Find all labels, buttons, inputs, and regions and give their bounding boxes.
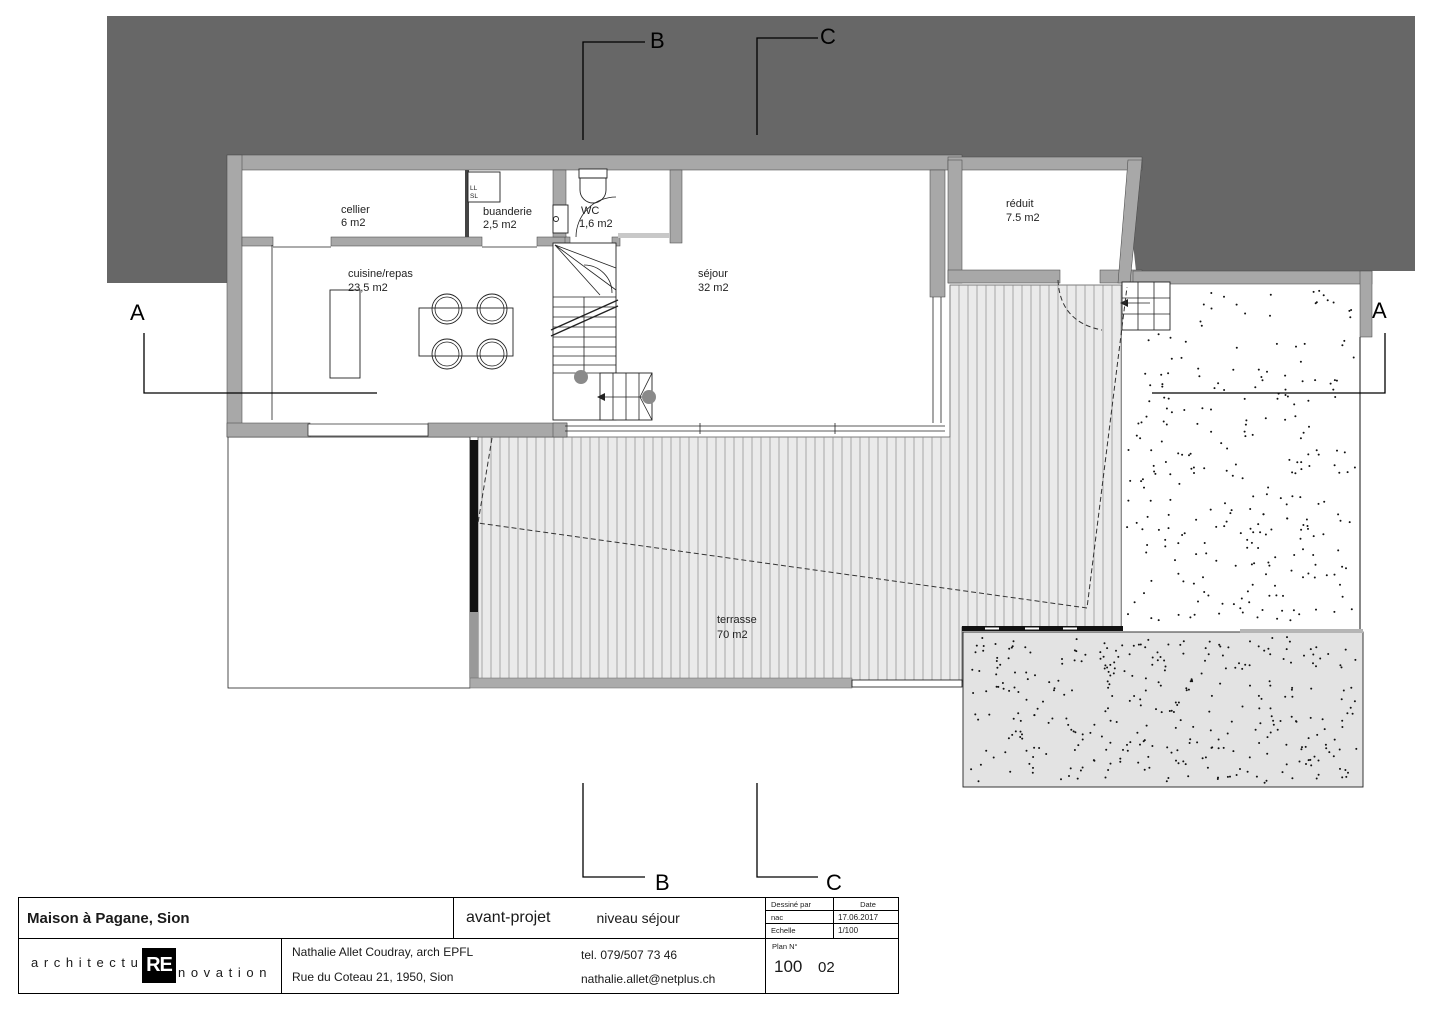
laundry-appliances: LL SL	[468, 172, 500, 202]
room-label-cellier: cellier	[341, 204, 370, 216]
phase-cell: avant-projet niveau séjour	[454, 898, 766, 939]
section-b-bottom: B	[655, 870, 670, 895]
stair-post	[574, 370, 588, 384]
date-label: Date	[834, 898, 898, 911]
terrace-edge-dashes	[985, 628, 1077, 630]
sejour-lintel	[618, 233, 670, 238]
room-label-wc: WC	[581, 205, 599, 217]
terrace-edge-lower	[470, 612, 478, 688]
south-window	[308, 424, 428, 436]
room-area-wc: 1,6 m2	[579, 218, 613, 230]
room-label-cuisine: cuisine/repas	[348, 268, 413, 280]
toilet-tank	[579, 169, 607, 178]
architect-info: Nathalie Allet Coudray, arch EPFL Rue du…	[282, 939, 766, 993]
architect-phone: tel. 079/507 73 46	[581, 948, 677, 962]
room-area-reduit: 7.5 m2	[1006, 212, 1040, 224]
room-label-terrasse: terrasse	[717, 614, 757, 626]
date-value: 17.06.2017	[834, 911, 898, 924]
terrace-steps	[597, 373, 656, 420]
logo-accent-box: RE	[142, 948, 176, 983]
plan-number-label: Plan N°	[772, 942, 798, 951]
logo-text-prefix: a r c h i t e c t u	[31, 955, 139, 970]
phase-label: avant-projet	[466, 909, 551, 927]
project-title: Maison à Pagane, Sion	[19, 898, 454, 939]
room-area-cuisine: 23,5 m2	[348, 282, 388, 294]
floor-plan-drawing: LL SL	[0, 0, 1455, 1014]
plan-number-cell: Plan N° 100 02	[766, 939, 898, 993]
wc-sink-tap	[554, 217, 559, 222]
terrace-edge-wall	[470, 440, 478, 612]
level-label: niveau séjour	[597, 910, 680, 926]
exterior-stair	[1120, 282, 1170, 330]
room-area-terrasse: 70 m2	[717, 629, 748, 641]
section-a-left: A	[130, 300, 145, 325]
room-area-cellier: 6 m2	[341, 217, 365, 229]
room-label-reduit: réduit	[1006, 198, 1034, 210]
plan-number: 100	[774, 957, 802, 977]
title-block: Maison à Pagane, Sion avant-projet nivea…	[18, 897, 899, 994]
gravel-area-upper	[1122, 285, 1360, 630]
architect-address: Rue du Coteau 21, 1950, Sion	[292, 970, 453, 984]
section-b-top: B	[650, 28, 665, 53]
room-area-buanderie: 2,5 m2	[483, 219, 517, 231]
washer-label: LL	[470, 185, 478, 192]
firm-logo: a r c h i t e c t u RE n o v a t i o n	[19, 939, 282, 993]
terrace-south-band	[470, 678, 852, 688]
stair-post	[642, 390, 656, 404]
plan-index: 02	[818, 959, 835, 976]
drawn-by-label: Dessiné par	[766, 898, 834, 911]
scale-value: 1/100	[834, 924, 898, 939]
section-a-right: A	[1372, 298, 1387, 323]
architect-name: Nathalie Allet Coudray, arch EPFL	[292, 945, 473, 959]
floor-plan-sheet: LL SL	[0, 0, 1455, 1014]
room-label-buanderie: buanderie	[483, 206, 532, 218]
lower-garden-area	[228, 437, 470, 688]
drawn-by-value: nac	[766, 911, 834, 924]
logo-text-suffix: n o v a t i o n	[178, 965, 267, 980]
room-area-sejour: 32 m2	[698, 282, 729, 294]
room-label-sejour: séjour	[698, 268, 728, 280]
gravel-area-lower	[963, 632, 1363, 787]
reduit-interior	[962, 170, 1131, 270]
section-c-top: C	[820, 24, 836, 49]
gravel-top-band	[1240, 629, 1363, 633]
terrace-south-step	[852, 680, 962, 687]
architect-email: nathalie.allet@netplus.ch	[581, 972, 715, 986]
section-c-bottom: C	[826, 870, 842, 895]
dryer-label: SL	[470, 193, 478, 200]
kitchen-island	[330, 290, 360, 378]
scale-label: Echelle	[766, 924, 834, 939]
meta-table: Dessiné par Date nac 17.06.2017 Echelle …	[766, 898, 898, 939]
